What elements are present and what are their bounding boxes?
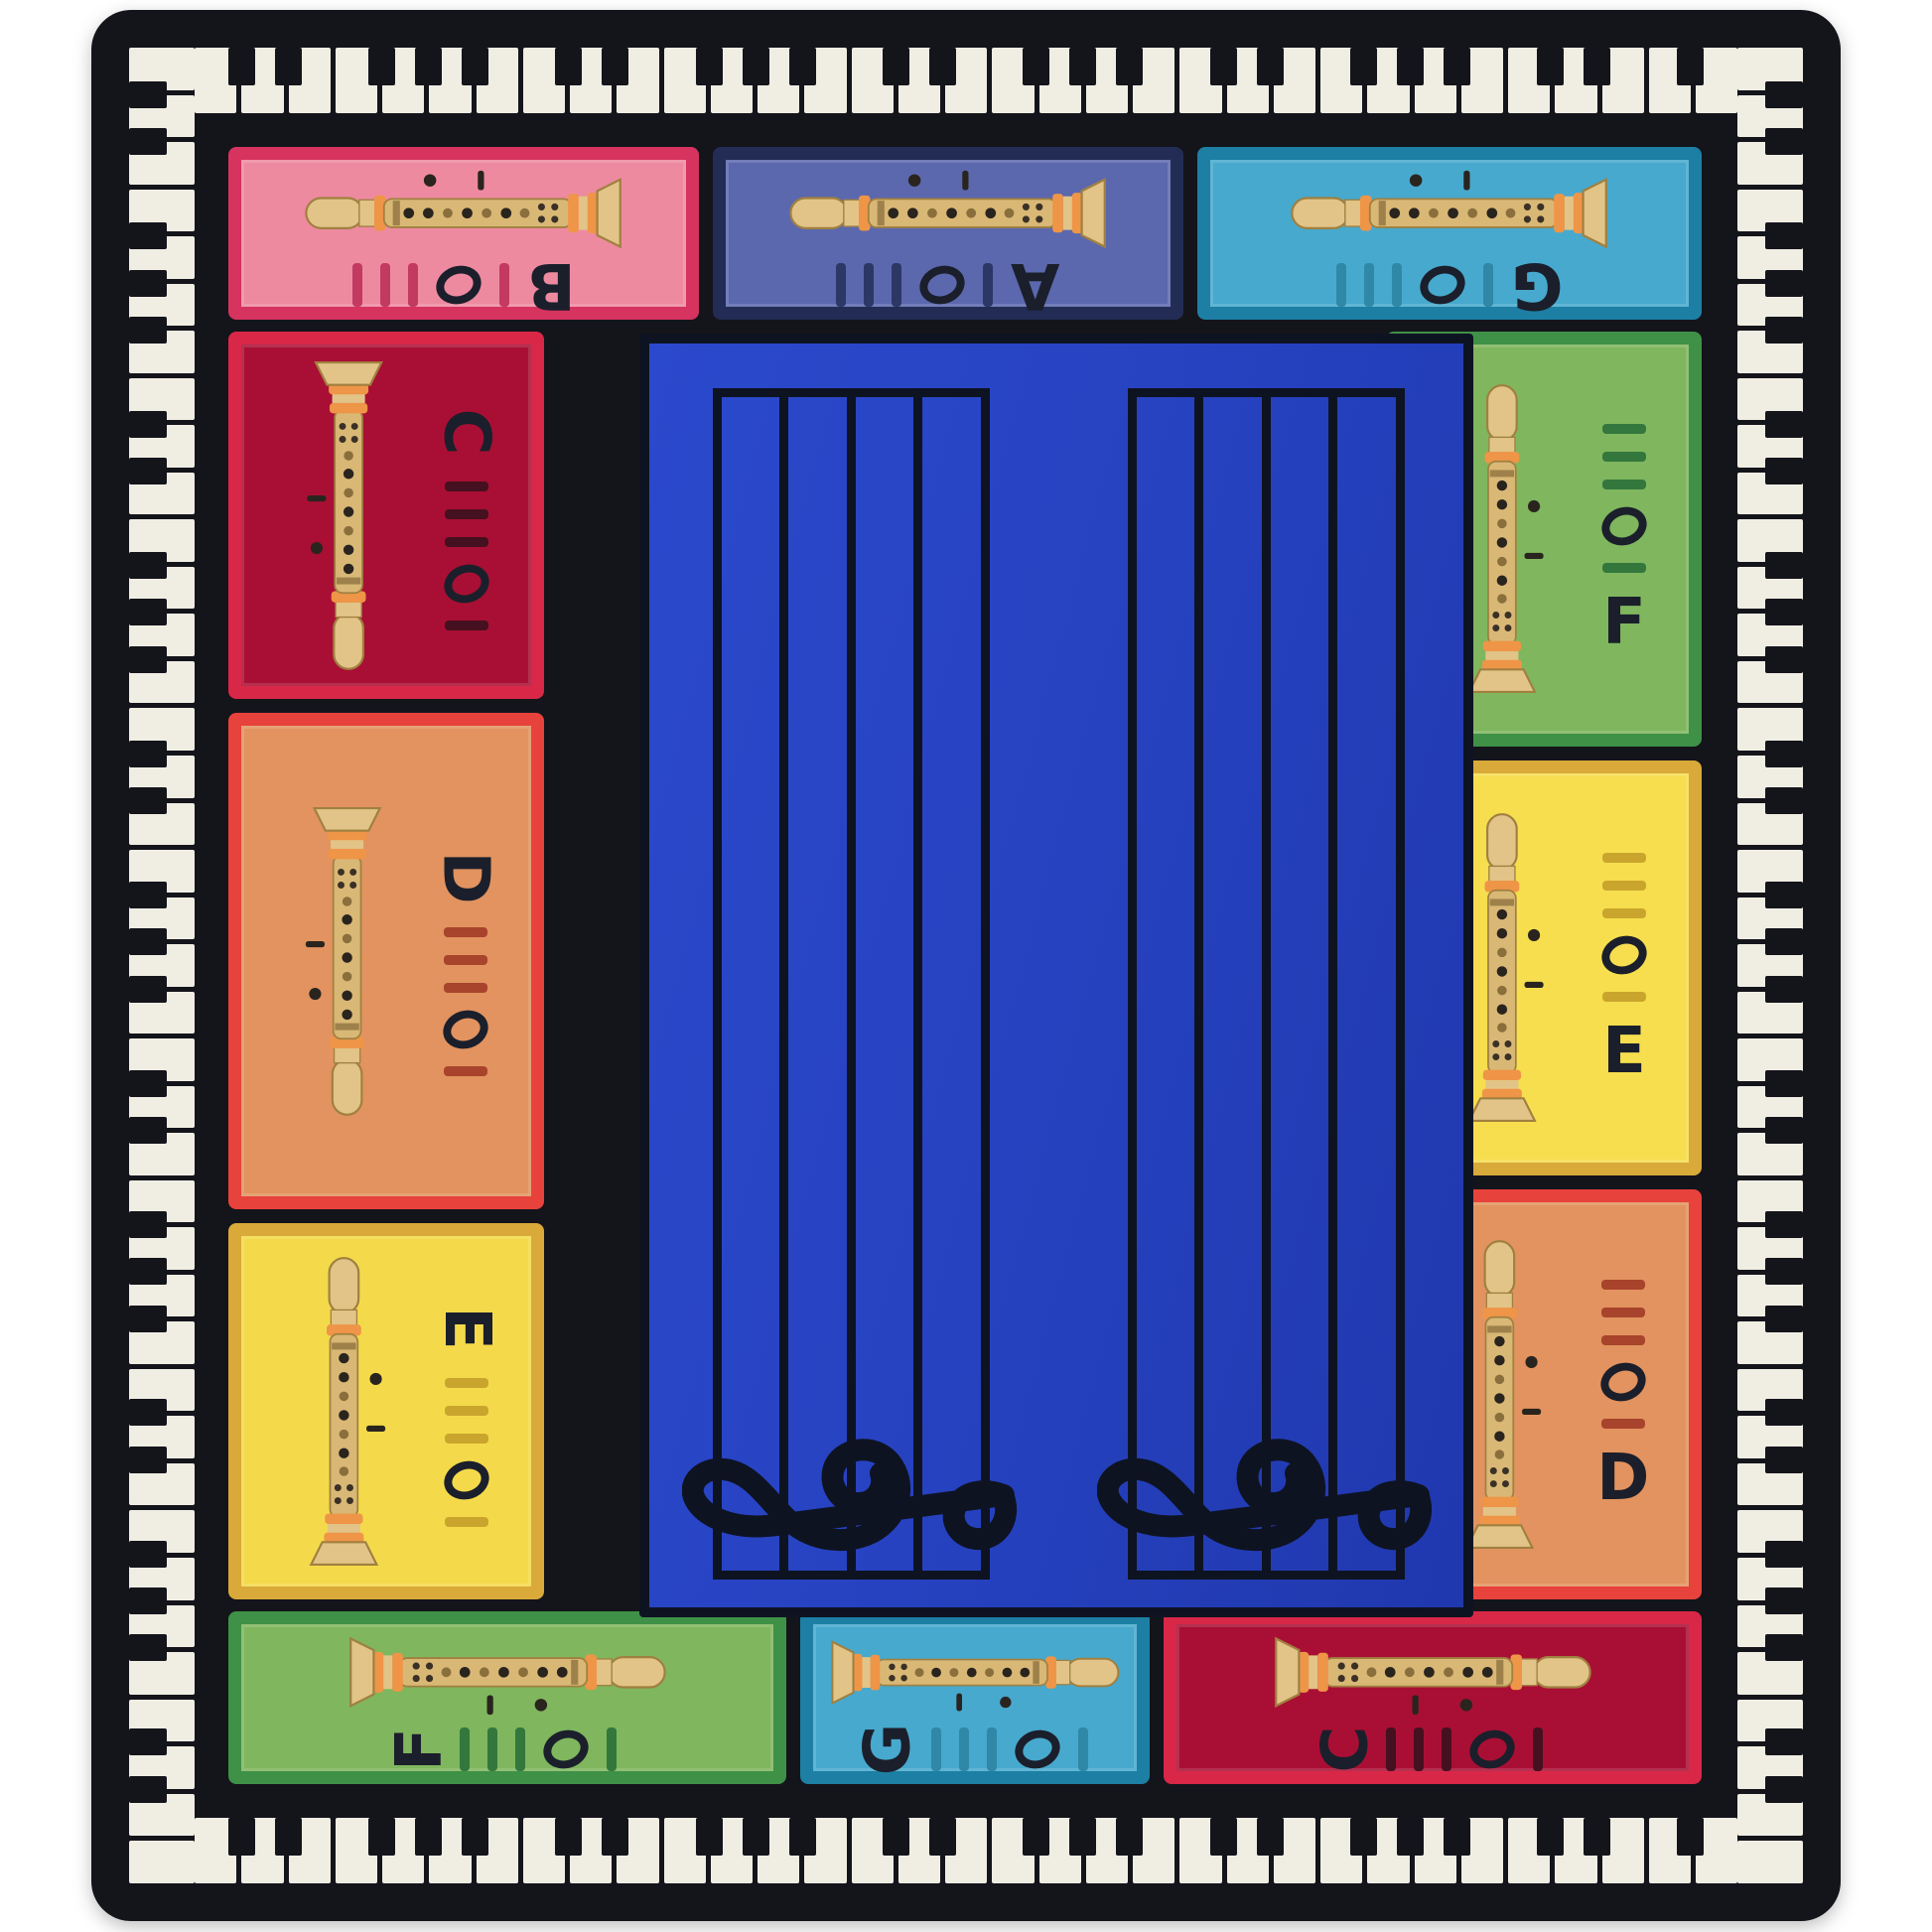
fingering-dash [444,927,487,937]
whole-note-icon [439,1454,493,1504]
note-letter: C [435,409,498,456]
piano-black-key [129,976,167,1003]
page-background: B A [0,0,1932,1932]
note-panel-body: B [241,160,686,307]
piano-black-key [929,1818,956,1856]
fingering-dash [931,1727,941,1771]
recorder-icon [1464,788,1544,1149]
fingering-dash [1386,1727,1396,1771]
fingering-chart: D [439,846,491,1076]
fingering-dash [1602,881,1646,891]
fingering-dash [445,509,488,519]
whole-note-icon [1595,1356,1650,1406]
fingering-dash [1601,1335,1645,1345]
note-panel-body: D [241,726,531,1196]
whole-note-icon [538,1725,593,1774]
piano-black-key [1069,48,1096,85]
piano-black-key [129,928,167,955]
note-panel-e-left: E [228,1223,544,1599]
piano-black-key [1765,81,1803,108]
piano-black-key [555,1818,582,1856]
music-staff [1128,388,1405,1580]
recorder-wrap [281,734,408,1188]
recorder-icon [830,1634,1120,1716]
note-panel-body: G [813,1624,1137,1771]
fingering-chart: F [1601,424,1647,654]
piano-black-key [1444,1818,1470,1856]
piano-black-key [129,552,167,579]
fingering-dash [1533,1727,1543,1771]
piano-black-key [368,48,395,85]
piano-black-key [415,48,442,85]
piano-black-key [1765,552,1803,579]
fingering-dash [445,537,488,547]
fingering-dash [1601,1308,1645,1317]
piano-black-key [415,1818,442,1856]
piano-black-key [789,1818,816,1856]
piano-black-key [1765,1541,1803,1568]
fingering-dash [1336,263,1346,307]
piano-black-key [1537,48,1564,85]
fingering-dash [445,1406,488,1416]
piano-black-key [129,1587,167,1614]
note-letter: D [434,851,497,903]
fingering-dash [460,1727,470,1771]
staff-line [779,397,788,1571]
note-panel-body: E [241,1236,531,1587]
recorder-wrap [249,168,678,253]
music-staff [713,388,990,1580]
rug: B A [91,10,1841,1921]
piano-black-key [1765,1399,1803,1426]
piano-black-key [129,1728,167,1755]
recorder-wrap [249,1632,765,1718]
piano-black-key [1257,1818,1284,1856]
fingering-dash [1602,452,1646,462]
piano-black-key [1584,1818,1610,1856]
piano-black-key [883,1818,909,1856]
piano-black-key [1765,646,1803,673]
fingering-dash [864,263,874,307]
piano-black-key [129,646,167,673]
fingering-dash [380,263,390,307]
note-panel-b-top: B [228,147,699,320]
piano-black-key [1210,1818,1237,1856]
fingering-dash [1602,424,1646,434]
fingering-chart: C [443,400,489,630]
whole-note-icon [438,1005,492,1054]
piano-black-key [1210,48,1237,85]
piano-key-border-left [129,48,195,1883]
whole-note-icon [1011,1725,1065,1774]
piano-black-key [462,1818,488,1856]
note-panel-a-top: A [713,147,1183,320]
piano-black-key [228,48,255,85]
piano-black-key [129,1776,167,1803]
piano-black-key [129,1306,167,1332]
fingering-dash [445,1378,488,1388]
piano-black-key [129,1258,167,1285]
piano-black-key [1350,1818,1377,1856]
recorder-wrap [1218,168,1681,253]
note-letter: E [435,1307,498,1350]
fingering-dash [983,263,993,307]
whole-note-icon [914,260,969,310]
piano-black-key [129,1117,167,1144]
staff-line [1194,397,1203,1571]
note-panel-c-bottom: C [1164,1611,1702,1784]
whole-note-icon [1596,930,1651,980]
recorder-wrap [283,352,410,678]
fingering-dash [1601,1419,1645,1429]
piano-black-key [743,48,769,85]
piano-black-key [602,48,628,85]
fingering-dash [408,263,418,307]
note-letter: A [1011,253,1060,317]
fingering-chart: B [352,253,576,317]
piano-key-border-bottom [195,1818,1737,1883]
piano-black-key [696,48,723,85]
piano-black-key [1765,1117,1803,1144]
whole-note-icon [431,260,485,310]
center-field [639,334,1473,1617]
fingering-dash [1602,992,1646,1002]
piano-black-key [275,48,302,85]
piano-black-key [555,48,582,85]
fingering-dash [1602,853,1646,863]
piano-black-key [1765,411,1803,438]
piano-black-key [129,1634,167,1661]
recorder-icon [305,748,384,1174]
piano-black-key [1116,48,1143,85]
staff-line [1396,397,1405,1571]
piano-black-key [129,317,167,344]
staff-line [1328,397,1337,1571]
whole-note-icon [1415,260,1469,310]
fingering-chart: A [836,253,1060,317]
piano-black-key [883,48,909,85]
piano-black-key [275,1818,302,1856]
piano-black-key [929,48,956,85]
fingering-chart: G [862,1718,1089,1781]
fingering-dash [1483,263,1493,307]
whole-note-icon [1465,1725,1520,1774]
note-panel-f-bottom: F [228,1611,786,1784]
piano-black-key [1023,48,1049,85]
piano-black-key [1765,270,1803,297]
note-panel-c-left: C [228,332,544,699]
treble-clef-icon [682,1426,1020,1565]
note-panel-body: C [1176,1624,1689,1771]
note-letter: F [388,1727,452,1771]
recorder-icon [1464,359,1544,720]
fingering-dash [445,1434,488,1444]
piano-white-key [129,1841,195,1883]
staff-line [847,397,856,1571]
piano-black-key [1765,1306,1803,1332]
fingering-dash [444,955,487,965]
fingering-dash [1602,563,1646,573]
piano-black-key [1023,1818,1049,1856]
fingering-dash [499,263,509,307]
piano-key-border-top [195,48,1737,113]
fingering-dash [1602,908,1646,918]
fingering-dash [445,621,488,630]
recorder-icon [1462,1217,1542,1573]
fingering-dash [1442,1727,1451,1771]
piano-black-key [1677,48,1704,85]
fingering-dash [607,1727,617,1771]
staff-line [913,397,922,1571]
recorder-icon [258,170,669,251]
piano-black-key [129,599,167,625]
piano-black-key [1584,48,1610,85]
piano-black-key [1397,48,1424,85]
piano-black-key [1765,882,1803,908]
note-letter: C [1313,1726,1377,1773]
fingering-chart: E [444,1297,489,1527]
piano-black-key [129,741,167,767]
recorder-wrap [734,168,1163,253]
recorder-icon [743,170,1154,251]
note-panel-g-bottom: G [800,1611,1150,1784]
fingering-dash [352,263,362,307]
piano-black-key [1765,1776,1803,1803]
note-letter: G [856,1724,919,1776]
piano-black-key [129,1447,167,1473]
whole-note-icon [439,559,493,609]
piano-black-key [129,270,167,297]
note-letter: D [1596,1447,1649,1510]
staff-line [713,397,722,1571]
piano-black-key [1765,1728,1803,1755]
piano-black-key [129,458,167,484]
piano-black-key [1397,1818,1424,1856]
piano-black-key [1765,128,1803,155]
piano-black-key [1765,1587,1803,1614]
note-panel-body: C [241,345,531,686]
fingering-dash [1078,1727,1088,1771]
fingering-chart: C [1322,1718,1544,1781]
fingering-chart: E [1601,853,1647,1083]
fingering-dash [445,482,488,491]
piano-black-key [1765,222,1803,249]
recorder-icon [1219,1634,1646,1716]
piano-black-key [602,1818,628,1856]
note-letter: B [527,253,576,317]
piano-black-key [1444,48,1470,85]
piano-black-key [1765,599,1803,625]
piano-black-key [1537,1818,1564,1856]
piano-black-key [129,128,167,155]
staff-line [1128,397,1137,1571]
piano-black-key [462,48,488,85]
piano-black-key [1765,1447,1803,1473]
fingering-dash [892,263,901,307]
fingering-dash [444,1066,487,1076]
fingering-dash [515,1727,525,1771]
piano-black-key [1765,1211,1803,1238]
piano-white-key [1737,1841,1803,1883]
note-letter: E [1602,1020,1646,1083]
piano-black-key [129,411,167,438]
piano-black-key [696,1818,723,1856]
piano-black-key [129,1211,167,1238]
fingering-dash [987,1727,997,1771]
fingering-dash [1601,1280,1645,1290]
fingering-dash [1364,263,1374,307]
piano-black-key [228,1818,255,1856]
recorder-wrap [1184,1632,1681,1718]
whole-note-icon [1596,501,1651,551]
piano-black-key [1765,1070,1803,1097]
fingering-dash [1414,1727,1424,1771]
note-panel-body: A [726,160,1171,307]
piano-key-border-right [1737,48,1803,1883]
staff-line [981,397,990,1571]
recorder-wrap [821,1632,1129,1718]
staff-line [1262,397,1271,1571]
note-panel-body: G [1210,160,1689,307]
piano-black-key [1765,1634,1803,1661]
piano-black-key [1116,1818,1143,1856]
fingering-chart: G [1336,253,1564,317]
treble-clef-icon [1097,1426,1435,1565]
piano-black-key [1257,48,1284,85]
piano-black-key [1765,928,1803,955]
fingering-dash [959,1727,969,1771]
piano-black-key [129,1399,167,1426]
piano-black-key [1765,976,1803,1003]
piano-black-key [129,787,167,814]
fingering-dash [444,983,487,993]
piano-black-key [1765,741,1803,767]
recorder-icon [1236,170,1663,251]
recorder-icon [307,1251,386,1573]
recorder-wrap [283,1244,410,1579]
recorder-icon [294,1634,721,1716]
piano-black-key [1350,48,1377,85]
fingering-chart: F [398,1718,617,1781]
fingering-dash [836,263,846,307]
piano-black-key [1069,1818,1096,1856]
fingering-dash [1602,480,1646,489]
note-panel-d-left: D [228,713,544,1209]
fingering-dash [1392,263,1402,307]
piano-black-key [129,1070,167,1097]
piano-black-key [1765,317,1803,344]
piano-black-key [1765,1258,1803,1285]
piano-black-key [368,1818,395,1856]
note-panel-g-top: G [1197,147,1702,320]
piano-black-key [743,1818,769,1856]
note-letter: F [1602,591,1646,654]
fingering-dash [487,1727,497,1771]
fingering-dash [445,1517,488,1527]
piano-black-key [1765,458,1803,484]
piano-black-key [1677,1818,1704,1856]
piano-black-key [129,1541,167,1568]
recorder-icon [307,359,386,672]
piano-black-key [129,882,167,908]
note-letter: G [1511,253,1564,317]
piano-black-key [789,48,816,85]
fingering-chart: D [1596,1280,1649,1510]
piano-black-key [1765,787,1803,814]
piano-black-key [129,81,167,108]
note-panel-body: F [241,1624,773,1771]
piano-black-key [129,222,167,249]
